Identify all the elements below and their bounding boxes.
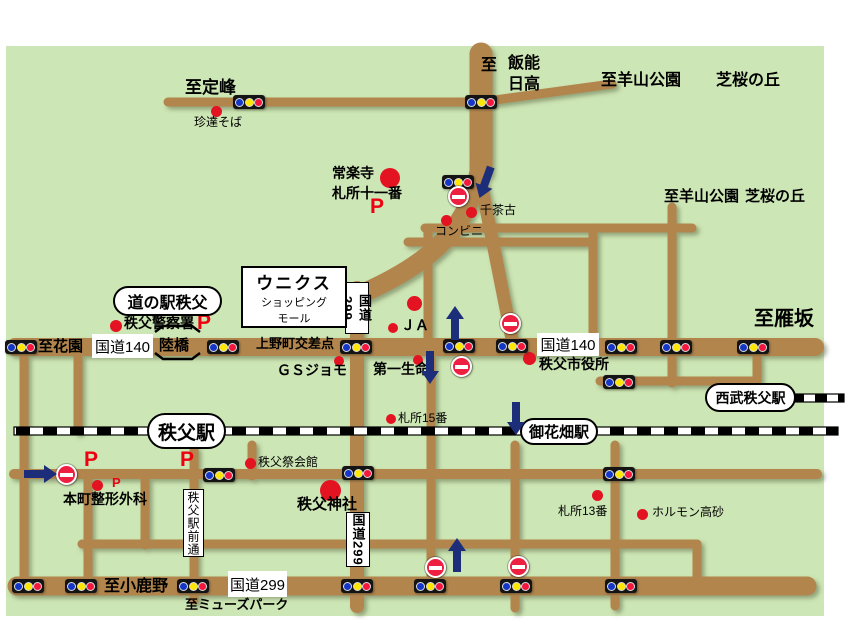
poi-dot-fudasho15 <box>386 414 396 424</box>
traffic-light-icon <box>737 340 769 354</box>
traffic-light-icon <box>500 579 532 593</box>
poi-dot-saikaikan <box>245 458 256 469</box>
direction-yamakoen-mid: 至羊山公園 <box>664 189 739 206</box>
poi-dot-ja <box>388 323 398 333</box>
poi-gsjomo: ＧＳジョモ <box>277 363 347 379</box>
traffic-light-icon <box>603 375 635 389</box>
michinoeki-capsule: 道の駅秩父 <box>113 286 222 316</box>
poi-honcho: 本町整形外科 <box>63 492 147 508</box>
traffic-light-icon <box>203 468 235 482</box>
traffic-light-icon <box>65 579 97 593</box>
poi-fudasho15: 札所15番 <box>398 412 447 425</box>
ohanabatake-station: 御花畑駅 <box>520 418 598 445</box>
no-entry-icon <box>425 557 446 578</box>
route299-box-mid: 国道299 <box>346 512 370 567</box>
route-arrow-right-icon <box>24 465 58 483</box>
route-arrow-down-icon <box>507 402 525 436</box>
poi-dot-shiyakusho <box>523 352 536 365</box>
direction-hanazono: 至花園 <box>38 339 83 356</box>
poi-chintatsu: 珍達そば <box>194 116 242 129</box>
no-entry-icon <box>448 186 469 207</box>
poi-dot-fudasho13 <box>592 490 603 501</box>
poi-dot-police <box>110 320 122 332</box>
direction-ogano: 至小鹿野 <box>104 578 168 596</box>
traffic-light-icon <box>605 340 637 354</box>
seibu-chichibu-station: 西武秩父駅 <box>705 383 796 412</box>
railway-seibu-line <box>790 394 844 402</box>
ekimaedori-box: 秩父駅前通 <box>183 489 204 557</box>
poi-fudasho13: 札所13番 <box>558 505 607 518</box>
unicus-sub2: モール <box>278 310 311 326</box>
no-entry-icon <box>508 556 529 577</box>
route-arrow-up-icon <box>446 306 464 340</box>
traffic-light-icon <box>414 579 446 593</box>
traffic-light-icon <box>443 339 475 353</box>
direction-shibazakura-mid: 芝桜の丘 <box>745 189 805 206</box>
chichibu-area-map: 至定峰 至 飯能 日高 至羊山公園 芝桜の丘 至羊山公園 芝桜の丘 至雁坂 至花… <box>0 0 846 636</box>
direction-sadamine: 至定峰 <box>185 78 236 97</box>
poi-fudasho11: 札所十一番 <box>332 186 402 202</box>
poi-horumon: ホルモン高砂 <box>652 506 724 519</box>
poi-dot-senchako <box>466 207 477 218</box>
traffic-light-icon <box>603 467 635 481</box>
poi-ja: ＪＡ <box>401 318 429 334</box>
route299-box-upper: 国道299 <box>345 282 369 334</box>
unicus-box: ウニクス ショッピング モール <box>241 266 347 328</box>
direction-to: 至 <box>481 57 497 75</box>
traffic-light-icon <box>660 340 692 354</box>
traffic-light-icon <box>496 339 528 353</box>
road-yamakoen-upper <box>480 84 612 102</box>
no-entry-icon <box>451 356 472 377</box>
unicus-sub1: ショッピング <box>261 294 327 310</box>
direction-yamakoen-top: 至羊山公園 <box>601 72 681 90</box>
traffic-light-icon <box>5 340 37 354</box>
traffic-light-icon <box>233 95 265 109</box>
parking-icon-station-west: P <box>84 449 98 470</box>
direction-hanno: 飯能 <box>508 55 540 73</box>
poi-dot-honcho <box>92 480 103 491</box>
route140-box-left: 国道140 <box>92 334 153 358</box>
poi-dot-horumon <box>637 509 648 520</box>
chichibu-station: 秩父駅 <box>147 413 226 449</box>
route-arrow-down-icon <box>421 351 439 385</box>
no-entry-icon <box>500 313 521 334</box>
route140-box-right: 国道140 <box>537 333 599 356</box>
rikkyo-label: 陸橋 <box>159 338 189 355</box>
poi-jorakuji: 常楽寺 <box>332 166 374 182</box>
unicus-name: ウニクス <box>256 269 332 294</box>
traffic-light-icon <box>605 579 637 593</box>
traffic-light-icon <box>340 340 372 354</box>
parking-icon-jorakuji: P <box>370 196 384 217</box>
traffic-light-icon <box>207 340 239 354</box>
uenomachi-crossing-label: 上野町交差点 <box>256 337 334 352</box>
direction-hidaka: 日高 <box>508 76 540 94</box>
traffic-light-icon <box>465 95 497 109</box>
poi-konbini: コンビニ <box>435 225 483 238</box>
traffic-light-icon <box>341 579 373 593</box>
poi-police: 秩父警察署 <box>124 316 194 332</box>
parking-icon-honcho: P <box>112 476 121 489</box>
direction-musepark: 至ミューズパーク <box>185 598 288 613</box>
direction-karisaka: 至雁坂 <box>754 308 814 330</box>
route-arrow-up-icon <box>448 538 466 572</box>
traffic-light-icon <box>177 579 209 593</box>
traffic-light-icon <box>342 466 374 480</box>
poi-shiyakusho: 秩父市役所 <box>539 357 609 373</box>
railway-chichibu-line <box>14 427 838 435</box>
poi-jinja: 秩父神社 <box>297 497 357 514</box>
no-entry-icon <box>56 464 77 485</box>
poi-dot-unicus <box>407 296 422 311</box>
direction-shibazakura-top: 芝桜の丘 <box>716 72 780 90</box>
route299-box-bottom: 国道299 <box>228 571 287 597</box>
traffic-light-icon <box>12 579 44 593</box>
poi-saikaikan: 秩父祭会館 <box>258 456 318 469</box>
poi-senchako: 千茶古 <box>480 204 516 217</box>
parking-icon-station-east: P <box>180 449 194 470</box>
